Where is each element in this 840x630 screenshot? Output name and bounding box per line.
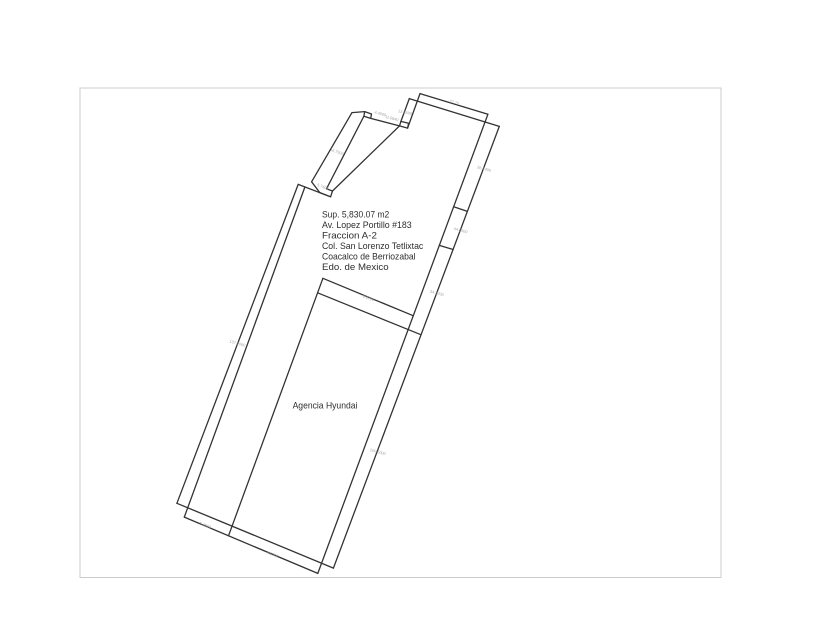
svg-text:Edo. de Mexico: Edo. de Mexico <box>322 262 389 272</box>
svg-text:12.3500: 12.3500 <box>398 108 414 116</box>
svg-text:16.7500: 16.7500 <box>330 147 346 157</box>
svg-text:Sup. 5,830.07 m2: Sup. 5,830.07 m2 <box>322 209 389 219</box>
svg-text:8.0700: 8.0700 <box>266 550 280 559</box>
svg-text:Av. Lopez Portillo #183: Av. Lopez Portillo #183 <box>322 220 412 230</box>
svg-text:Agencia Hyundai: Agencia Hyundai <box>293 401 358 412</box>
svg-text:Fraccion A-2: Fraccion A-2 <box>322 231 377 241</box>
svg-text:44.0500: 44.0500 <box>453 226 469 235</box>
svg-text:Coacalco de Berriozabal: Coacalco de Berriozabal <box>322 252 416 262</box>
svg-text:34.2200: 34.2200 <box>430 289 446 298</box>
svg-text:11.0840: 11.0840 <box>385 114 400 123</box>
svg-text:137.2080: 137.2080 <box>229 339 247 348</box>
svg-text:36.7400: 36.7400 <box>477 164 493 173</box>
svg-text:Col. San Lorenzo Tetlixtac: Col. San Lorenzo Tetlixtac <box>322 241 424 251</box>
svg-text:8.0760: 8.0760 <box>362 294 376 303</box>
svg-text:100.5000: 100.5000 <box>369 447 387 456</box>
